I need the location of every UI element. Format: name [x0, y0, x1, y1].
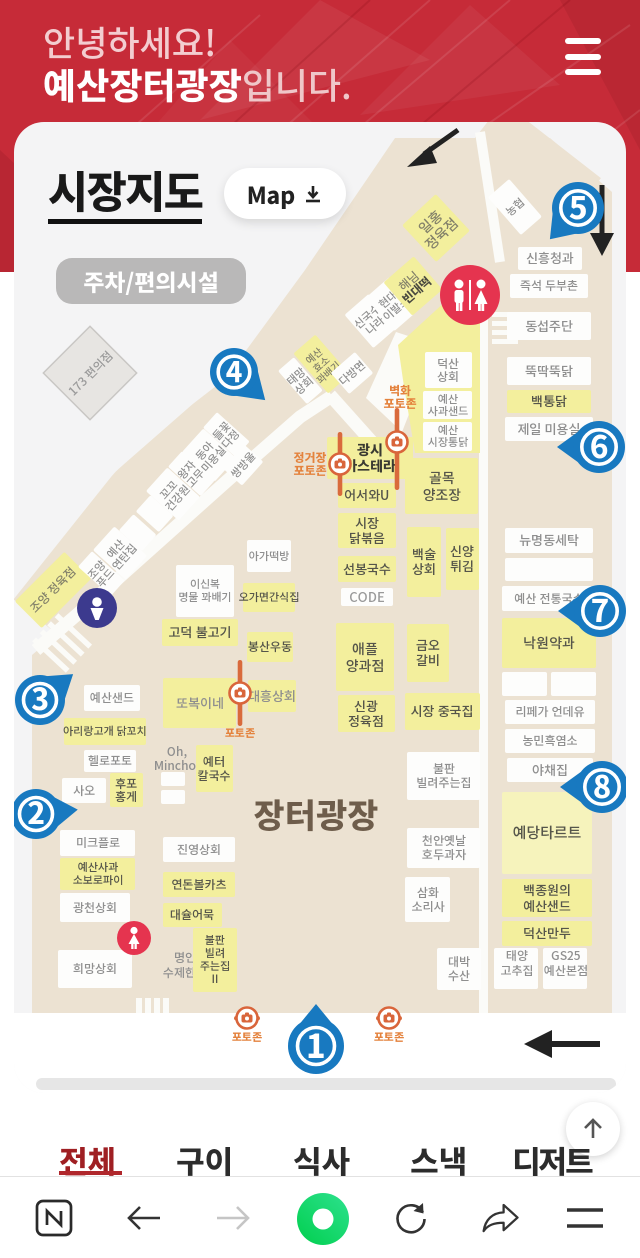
- svg-text:고추집: 고추집: [500, 962, 533, 979]
- svg-text:호두과자: 호두과자: [422, 846, 466, 863]
- svg-text:시장 중국집: 시장 중국집: [410, 701, 473, 720]
- svg-text:사과샌드: 사과샌드: [428, 403, 468, 419]
- svg-text:포토존: 포토존: [225, 725, 255, 741]
- svg-text:정육점: 정육점: [348, 711, 384, 730]
- svg-text:예산샌드: 예산샌드: [523, 896, 571, 915]
- svg-text:아리랑고개 닭꼬치: 아리랑고개 닭꼬치: [63, 723, 147, 739]
- svg-text:뚝딱뚝닭: 뚝딱뚝닭: [525, 361, 573, 380]
- svg-text:사오: 사오: [73, 782, 95, 799]
- svg-text:진영상회: 진영상회: [177, 841, 221, 858]
- svg-text:제일 미용실: 제일 미용실: [517, 419, 580, 438]
- svg-text:닭볶음: 닭볶음: [349, 528, 385, 547]
- svg-text:고덕 불고기: 고덕 불고기: [168, 622, 231, 641]
- svg-text:어서와U: 어서와U: [344, 485, 389, 504]
- svg-text:야채집: 야채집: [532, 760, 568, 779]
- svg-text:갈비: 갈비: [416, 650, 440, 669]
- svg-text:미크플로: 미크플로: [76, 834, 120, 851]
- svg-text:포토존: 포토존: [293, 462, 326, 479]
- svg-text:II: II: [212, 971, 219, 987]
- svg-text:즉석 두부촌: 즉석 두부촌: [520, 277, 578, 294]
- svg-text:양조장: 양조장: [423, 485, 462, 505]
- svg-text:대흥상회: 대흥상회: [248, 686, 296, 705]
- svg-text:희망상회: 희망상회: [73, 960, 117, 977]
- svg-text:2: 2: [27, 789, 45, 833]
- svg-text:오가면간식집: 오가면간식집: [239, 589, 300, 605]
- svg-text:상회: 상회: [412, 559, 436, 578]
- svg-text:백통닭: 백통닭: [531, 391, 567, 410]
- svg-text:헬로포토: 헬로포토: [88, 752, 132, 769]
- svg-text:1: 1: [306, 1020, 326, 1068]
- svg-text:또복이네: 또복이네: [176, 693, 224, 712]
- svg-text:빌려주는집: 빌려주는집: [416, 774, 471, 791]
- svg-text:수산: 수산: [448, 967, 470, 984]
- svg-text:예당타르트: 예당타르트: [512, 822, 581, 843]
- svg-text:8: 8: [593, 762, 612, 807]
- svg-text:뉴명동세탁: 뉴명동세탁: [519, 530, 579, 549]
- svg-text:예산본점: 예산본점: [544, 962, 588, 979]
- svg-text:농민흑염소: 농민흑염소: [522, 732, 577, 749]
- svg-text:연돈볼카츠: 연돈볼카츠: [171, 876, 226, 893]
- svg-text:선봉국수: 선봉국수: [343, 559, 391, 578]
- svg-text:소리사: 소리사: [411, 898, 444, 915]
- svg-text:신흥청과: 신흥청과: [526, 248, 574, 267]
- svg-text:봉산우동: 봉산우동: [248, 638, 292, 655]
- svg-text:포토존: 포토존: [383, 395, 416, 412]
- svg-text:4: 4: [226, 351, 243, 391]
- svg-text:포토존: 포토존: [232, 1029, 262, 1045]
- svg-text:장터광장: 장터광장: [253, 789, 378, 838]
- svg-text:대슐어묵: 대슐어묵: [170, 906, 214, 923]
- svg-text:카스테라: 카스테라: [344, 456, 396, 476]
- svg-text:아가떡방: 아가떡방: [249, 548, 289, 564]
- svg-text:덕산만두: 덕산만두: [523, 923, 571, 942]
- svg-text:예산샌드: 예산샌드: [90, 689, 134, 706]
- svg-text:Mincho!: Mincho!: [154, 757, 200, 774]
- svg-text:홍게: 홍게: [115, 788, 137, 805]
- svg-text:양과점: 양과점: [346, 656, 385, 676]
- svg-text:튀김: 튀김: [450, 556, 474, 575]
- svg-text:명물 꽈배기: 명물 꽈배기: [178, 589, 231, 605]
- svg-text:낙원약과: 낙원약과: [523, 633, 575, 653]
- svg-text:6: 6: [590, 422, 609, 467]
- svg-text:상회: 상회: [437, 368, 459, 385]
- svg-text:광천상회: 광천상회: [73, 899, 117, 916]
- svg-text:칼국수: 칼국수: [197, 767, 230, 784]
- svg-text:CODE: CODE: [349, 587, 384, 606]
- svg-text:소보로파이: 소보로파이: [73, 872, 124, 888]
- svg-text:리페가 언데유: 리페가 언데유: [515, 703, 584, 720]
- svg-text:포토존: 포토존: [374, 1029, 404, 1045]
- svg-text:7: 7: [591, 586, 610, 631]
- svg-text:시장통닭: 시장통닭: [428, 434, 468, 450]
- svg-text:5: 5: [569, 183, 588, 228]
- svg-text:동섭주단: 동섭주단: [525, 316, 573, 335]
- svg-text:3: 3: [31, 675, 49, 719]
